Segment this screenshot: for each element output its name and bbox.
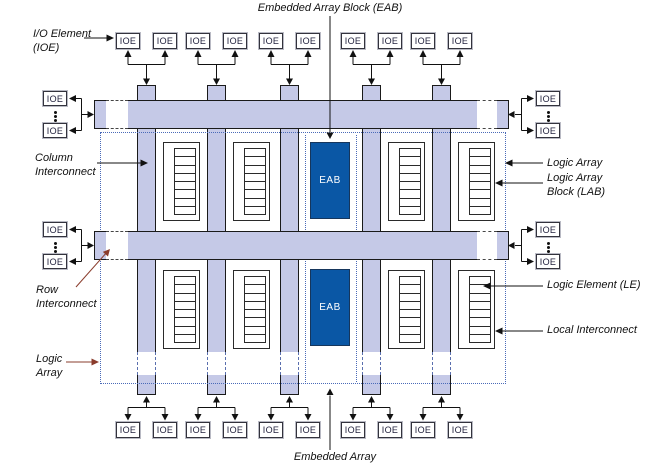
le-stack: [399, 148, 421, 215]
logic-element-cell: [245, 173, 265, 181]
logic-element-cell: [400, 198, 420, 206]
logic-element-cell: [400, 189, 420, 197]
logic-element-cell: [470, 189, 490, 197]
ioe-bracket-bottom-connector: [195, 396, 239, 421]
ioe-box: IOE: [223, 422, 247, 438]
logic-element-cell: [175, 156, 195, 164]
ioe-box: IOE: [411, 422, 435, 438]
row-boundary-gap: [106, 231, 128, 260]
logic-element-cell: [245, 181, 265, 189]
logic-element-cell: [400, 284, 420, 292]
logic-element-cell: [470, 334, 490, 342]
logic-element-cell: [400, 206, 420, 214]
ioe-bracket-top-connector: [268, 50, 312, 85]
logic-element-cell: [470, 301, 490, 309]
eab-block: EAB: [310, 142, 350, 219]
logic-element-cell: [400, 326, 420, 334]
logic-element-cell: [245, 301, 265, 309]
ioe-box: IOE: [448, 422, 472, 438]
logic-element-cell: [400, 293, 420, 301]
logic-element-cell: [400, 173, 420, 181]
ioe-bracket-bottom-connector: [268, 396, 312, 421]
row-boundary-gap: [106, 100, 128, 129]
lab-block: [163, 142, 200, 221]
logic-element-cell: [245, 317, 265, 325]
logic-element-cell: [470, 326, 490, 334]
logic-element-cell: [400, 317, 420, 325]
logic-element-cell: [245, 326, 265, 334]
ellipsis-dot: [547, 111, 550, 114]
local-interconnect-label: Local Interconnect: [547, 324, 637, 338]
logic-element-cell: [175, 293, 195, 301]
logic-element-cell: [245, 149, 265, 156]
logic-element-cell: [470, 181, 490, 189]
lab-block: [458, 270, 495, 349]
ioe-box: IOE: [153, 422, 177, 438]
ioe-box: IOE: [536, 222, 560, 237]
logic-array-right-arrow: [505, 160, 543, 167]
logic-element-cell: [470, 206, 490, 214]
ellipsis-dot: [547, 250, 550, 253]
ioe-box: IOE: [186, 422, 210, 438]
lab-block: [458, 142, 495, 221]
ioe-box: IOE: [536, 254, 560, 269]
lab-block: [163, 270, 200, 349]
logic-element-cell: [175, 301, 195, 309]
ioe-box: IOE: [536, 91, 560, 106]
logic-element-cell: [470, 277, 490, 284]
logic-element-cell: [470, 165, 490, 173]
logic-element-cell: [470, 284, 490, 292]
ioe-box: IOE: [378, 33, 402, 49]
ioe-box: IOE: [116, 33, 140, 49]
ioe-bracket-right-connector: [508, 226, 534, 265]
logic-element-cell: [400, 165, 420, 173]
logic-element-cell: [175, 326, 195, 334]
logic-element-cell: [470, 198, 490, 206]
logic-element-cell: [400, 156, 420, 164]
logic-element-cell: [175, 165, 195, 173]
ellipsis-dot: [547, 242, 550, 245]
ioe-box: IOE: [223, 33, 247, 49]
logic-element-cell: [175, 198, 195, 206]
logic-element-cell: [400, 309, 420, 317]
ioe-box: IOE: [153, 33, 177, 49]
ellipsis-dot: [54, 246, 57, 249]
ellipsis-dot: [54, 115, 57, 118]
ioe-box: IOE: [43, 222, 67, 237]
ioe-box: IOE: [296, 33, 320, 49]
logic-element-cell: [400, 277, 420, 284]
logic-element-cell: [245, 309, 265, 317]
le-stack: [174, 148, 196, 215]
ellipsis-dot: [547, 115, 550, 118]
ioe-bracket-bottom-connector: [350, 396, 394, 421]
logic-element-cell: [400, 334, 420, 342]
logic-element-cell: [400, 181, 420, 189]
logic-element-cell: [245, 277, 265, 284]
lab-block: [388, 270, 425, 349]
fpga-architecture-diagram: Embedded Array Block (EAB) I/O Element (…: [0, 0, 654, 475]
logic-element-cell: [245, 284, 265, 292]
logic-element-cell: [245, 156, 265, 164]
ioe-box: IOE: [411, 33, 435, 49]
ioe-bracket-bottom-connector: [420, 396, 464, 421]
logic-array-right-label: Logic Array: [547, 157, 602, 171]
ioe-box: IOE: [341, 33, 365, 49]
ioe-box: IOE: [536, 123, 560, 138]
eab-block: EAB: [310, 269, 350, 346]
logic-element-cell: [175, 277, 195, 284]
ioe-box: IOE: [259, 422, 283, 438]
ioe-bracket-left-connector: [69, 95, 94, 134]
logic-element-cell: [245, 189, 265, 197]
le-stack: [469, 276, 491, 343]
embedded-array-title: Embedded Array: [265, 451, 405, 465]
ioe-box: IOE: [448, 33, 472, 49]
logic-element-cell: [400, 301, 420, 309]
column-interconnect-label: Column Interconnect: [35, 152, 96, 180]
logic-element-cell: [175, 189, 195, 197]
logic-element-cell: [245, 165, 265, 173]
logic-element-cell: [245, 293, 265, 301]
ioe-box: IOE: [296, 422, 320, 438]
io-element-label: I/O Element (IOE): [33, 28, 91, 56]
row-interconnect-band: [94, 100, 509, 129]
lab-block: [233, 142, 270, 221]
logic-element-cell: [175, 284, 195, 292]
ioe-bracket-left-connector: [69, 226, 94, 265]
logic-element-cell: [175, 149, 195, 156]
le-stack: [469, 148, 491, 215]
logic-element-cell: [470, 317, 490, 325]
row-boundary-gap: [477, 100, 497, 129]
le-stack: [244, 276, 266, 343]
ioe-box: IOE: [378, 422, 402, 438]
logic-element-cell: [175, 309, 195, 317]
le-stack: [399, 276, 421, 343]
logic-element-cell: [400, 149, 420, 156]
logic-element-cell: [470, 156, 490, 164]
row-interconnect-label: Row Interconnect: [36, 284, 97, 312]
ioe-bracket-top-connector: [350, 50, 394, 85]
ioe-bracket-top-connector: [420, 50, 464, 85]
ellipsis-dot: [547, 119, 550, 122]
logic-element-cell: [175, 181, 195, 189]
logic-element-cell: [470, 309, 490, 317]
row-interconnect-band: [94, 231, 509, 260]
ioe-box: IOE: [259, 33, 283, 49]
ellipsis-dot: [54, 111, 57, 114]
ioe-box: IOE: [341, 422, 365, 438]
ioe-box: IOE: [186, 33, 210, 49]
ellipsis-dot: [54, 250, 57, 253]
ioe-box: IOE: [116, 422, 140, 438]
ellipsis-dot: [547, 246, 550, 249]
logic-element-cell: [245, 334, 265, 342]
logic-element-cell: [175, 206, 195, 214]
logic-element-cell: [175, 334, 195, 342]
le-stack: [174, 276, 196, 343]
logic-array-block-label: Logic Array Block (LAB): [547, 172, 605, 200]
ioe-bracket-right-connector: [508, 95, 534, 134]
logic-element-cell: [470, 173, 490, 181]
logic-element-label: Logic Element (LE): [547, 279, 641, 293]
ioe-box: IOE: [43, 123, 67, 138]
logic-element-cell: [245, 206, 265, 214]
lab-block: [233, 270, 270, 349]
ellipsis-dot: [54, 242, 57, 245]
le-stack: [244, 148, 266, 215]
logic-element-cell: [175, 173, 195, 181]
ioe-bracket-top-connector: [125, 50, 169, 85]
logic-element-cell: [245, 198, 265, 206]
embedded-array-block-title: Embedded Array Block (EAB): [246, 2, 414, 16]
ioe-box: IOE: [43, 91, 67, 106]
ioe-bracket-top-connector: [195, 50, 239, 85]
ioe-bracket-bottom-connector: [125, 396, 169, 421]
row-boundary-gap: [477, 231, 497, 260]
ellipsis-dot: [54, 119, 57, 122]
lab-block: [388, 142, 425, 221]
logic-element-cell: [470, 149, 490, 156]
logic-element-cell: [470, 293, 490, 301]
embedded-array-arrow: [327, 389, 334, 451]
logic-element-cell: [175, 317, 195, 325]
ioe-box: IOE: [43, 254, 67, 269]
logic-array-left-arrow: [66, 359, 99, 366]
logic-array-left-label: Logic Array: [36, 353, 62, 381]
